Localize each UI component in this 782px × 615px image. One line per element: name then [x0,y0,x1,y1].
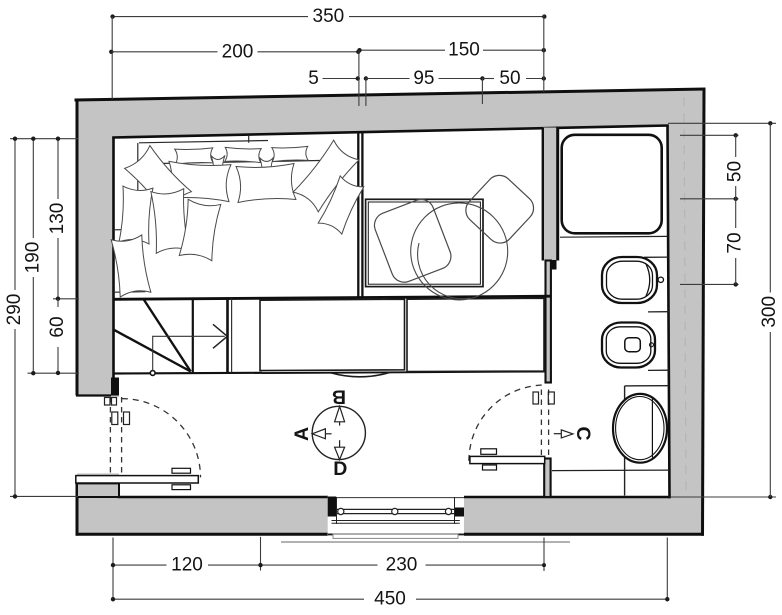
svg-text:190: 190 [22,242,43,274]
svg-text:5: 5 [308,68,319,89]
svg-text:120: 120 [171,555,203,576]
svg-text:300: 300 [759,296,780,328]
svg-text:200: 200 [222,41,254,62]
svg-text:290: 290 [4,294,25,326]
svg-text:50: 50 [725,161,746,182]
svg-text:70: 70 [725,232,746,253]
svg-text:D: D [333,458,347,480]
svg-text:150: 150 [448,40,480,61]
svg-text:130: 130 [47,203,68,235]
svg-text:C: C [572,427,594,441]
svg-text:350: 350 [313,6,345,27]
svg-text:50: 50 [499,68,520,89]
svg-text:230: 230 [386,555,418,576]
svg-text:60: 60 [47,316,68,337]
svg-text:A: A [291,427,313,441]
svg-text:B: B [332,385,346,407]
svg-text:450: 450 [374,589,406,610]
svg-text:95: 95 [413,68,434,89]
